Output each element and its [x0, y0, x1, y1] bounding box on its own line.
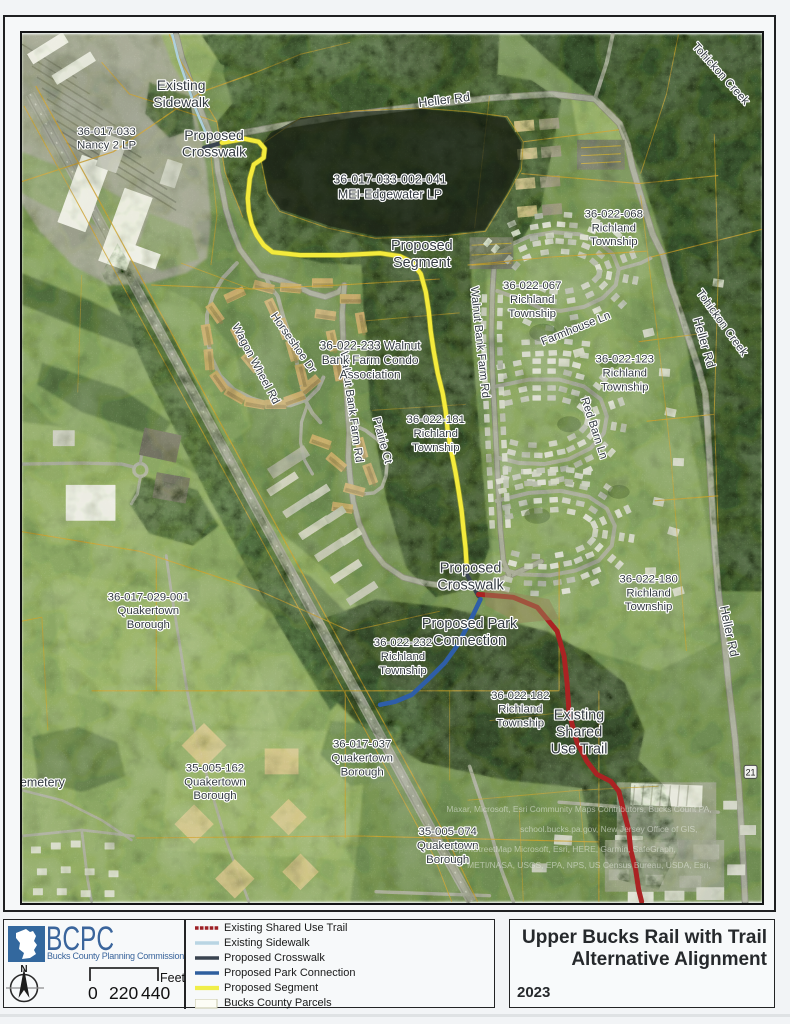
svg-text:Quakertown: Quakertown — [118, 605, 180, 617]
svg-text:Richland: Richland — [603, 367, 647, 379]
svg-text:METI/NASA, USGS, EPA, NPS, US: METI/NASA, USGS, EPA, NPS, US Census Bur… — [467, 860, 711, 870]
svg-text:Borough: Borough — [341, 766, 384, 778]
svg-text:Richland: Richland — [414, 428, 458, 440]
svg-text:Use Trail: Use Trail — [551, 741, 608, 757]
svg-text:36-017-033-002-041: 36-017-033-002-041 — [333, 173, 446, 187]
svg-text:Association: Association — [340, 367, 401, 381]
svg-text:Township: Township — [590, 236, 638, 248]
svg-text:MEI-Edgewater LP: MEI-Edgewater LP — [338, 187, 442, 201]
svg-text:Quakertown: Quakertown — [331, 752, 393, 764]
svg-text:Existing: Existing — [157, 77, 206, 93]
svg-text:36-022-123: 36-022-123 — [596, 354, 654, 366]
svg-text:Crosswalk: Crosswalk — [437, 577, 504, 593]
svg-text:36-022-182: 36-022-182 — [491, 690, 549, 702]
svg-text:Township: Township — [496, 718, 544, 730]
svg-text:Crosswalk: Crosswalk — [182, 144, 246, 160]
svg-text:Proposed: Proposed — [184, 127, 244, 143]
svg-text:36-022-068: 36-022-068 — [585, 208, 643, 220]
svg-text:36-017-037: 36-017-037 — [333, 738, 391, 750]
svg-text:Quakertown: Quakertown — [184, 776, 246, 788]
svg-text:Township: Township — [508, 308, 556, 320]
svg-text:Maxar, Microsoft, Esri Communi: Maxar, Microsoft, Esri Community Maps Co… — [446, 804, 711, 814]
svg-text:school.bucks.pa.gov, New Jerse: school.bucks.pa.gov, New Jersey Office o… — [520, 824, 697, 834]
svg-text:36-022-232: 36-022-232 — [374, 637, 432, 649]
svg-text:36-022-181: 36-022-181 — [407, 414, 465, 426]
svg-text:36-022-180: 36-022-180 — [619, 573, 677, 585]
svg-text:Proposed Park: Proposed Park — [422, 616, 518, 632]
svg-text:Richland: Richland — [626, 587, 670, 599]
svg-text:OpenStreetMap Microsoft, Esri,: OpenStreetMap Microsoft, Esri, HERE, Gar… — [452, 844, 676, 854]
svg-text:Borough: Borough — [127, 619, 170, 631]
svg-text:Sidewalk: Sidewalk — [153, 94, 209, 110]
svg-text:Borough: Borough — [426, 854, 469, 866]
svg-text:Richland: Richland — [510, 294, 554, 306]
svg-text:Connection: Connection — [433, 633, 506, 649]
svg-text:Existing: Existing — [554, 708, 604, 724]
svg-text:Shared: Shared — [556, 725, 602, 741]
svg-text:Richland: Richland — [498, 704, 542, 716]
svg-text:36-017-029-001: 36-017-029-001 — [108, 591, 189, 603]
svg-text:Borough: Borough — [193, 790, 236, 802]
svg-text:Nancy 2 LP: Nancy 2 LP — [77, 140, 136, 152]
svg-text:Proposed: Proposed — [391, 238, 453, 254]
svg-text:Bank Farm Condo: Bank Farm Condo — [322, 353, 419, 367]
svg-text:21: 21 — [746, 767, 756, 777]
svg-text:Township: Township — [625, 601, 673, 613]
svg-text:Township: Township — [601, 381, 649, 393]
svg-text:36-017-033: 36-017-033 — [77, 126, 135, 138]
svg-text:Richland: Richland — [592, 222, 636, 234]
svg-text:Township: Township — [412, 442, 460, 454]
svg-text:Richland: Richland — [381, 651, 425, 663]
svg-text:36-022-067: 36-022-067 — [503, 280, 561, 292]
svg-text:Township: Township — [379, 665, 427, 677]
svg-text:Cemetery: Cemetery — [20, 775, 66, 789]
svg-text:35-005-162: 35-005-162 — [186, 762, 244, 774]
svg-text:Proposed: Proposed — [440, 560, 502, 576]
svg-text:36-022-233 Walnut: 36-022-233 Walnut — [320, 339, 422, 353]
svg-text:Segment: Segment — [393, 255, 451, 271]
svg-text:35-005-074: 35-005-074 — [418, 826, 477, 838]
